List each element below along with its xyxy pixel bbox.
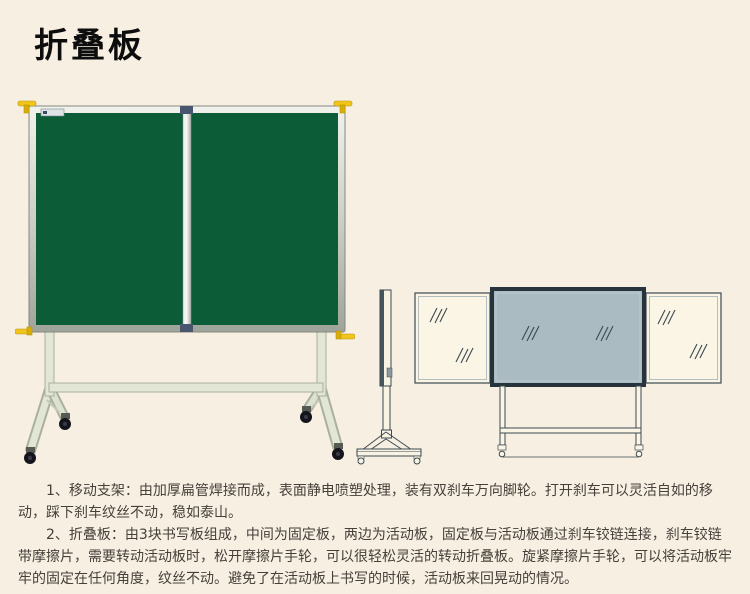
- product-page: 折叠板: [0, 0, 750, 594]
- page-title: 折叠板: [34, 18, 145, 67]
- divider-cap-bottom: [180, 324, 193, 332]
- product-photo: [15, 100, 355, 478]
- diagram-views: [352, 280, 750, 480]
- product-description: 1、移动支架：由加厚扁管焊接而成，表面静电喷塑处理，装有双刹车万向脚轮。打开刹车…: [18, 480, 734, 590]
- diagram-panel-right: [646, 293, 721, 383]
- stand-legs: [30, 388, 338, 452]
- board-panel-left: [36, 113, 184, 325]
- caster-wheels: [24, 406, 344, 464]
- description-paragraph-2: 2、折叠板：由3块书写板组成，中间为固定板，两边为活动板，固定板与活动板通过刹车…: [18, 524, 734, 590]
- diagram-stand: [498, 386, 643, 457]
- diagram-unfolded-view: [415, 289, 721, 457]
- board-center-divider: [183, 110, 191, 328]
- board-panel-right: [190, 113, 338, 325]
- folding-board-photo: [15, 100, 355, 478]
- divider-cap-top: [180, 106, 193, 114]
- description-paragraph-1: 1、移动支架：由加厚扁管焊接而成，表面静电喷塑处理，装有双刹车万向脚轮。打开刹车…: [18, 480, 734, 524]
- stand-crossbar: [49, 383, 323, 392]
- product-diagrams: [352, 280, 750, 480]
- diagram-panel-center: [492, 289, 644, 385]
- diagram-side-view: [357, 290, 421, 464]
- diagram-panel-left: [415, 293, 490, 383]
